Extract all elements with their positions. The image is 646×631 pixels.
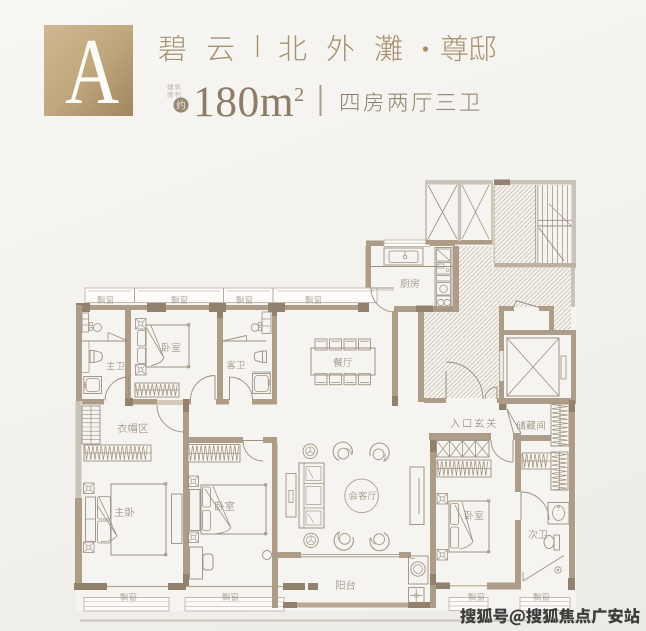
svg-text:180m2: 180m2	[193, 78, 305, 126]
svg-text:A: A	[65, 20, 119, 124]
